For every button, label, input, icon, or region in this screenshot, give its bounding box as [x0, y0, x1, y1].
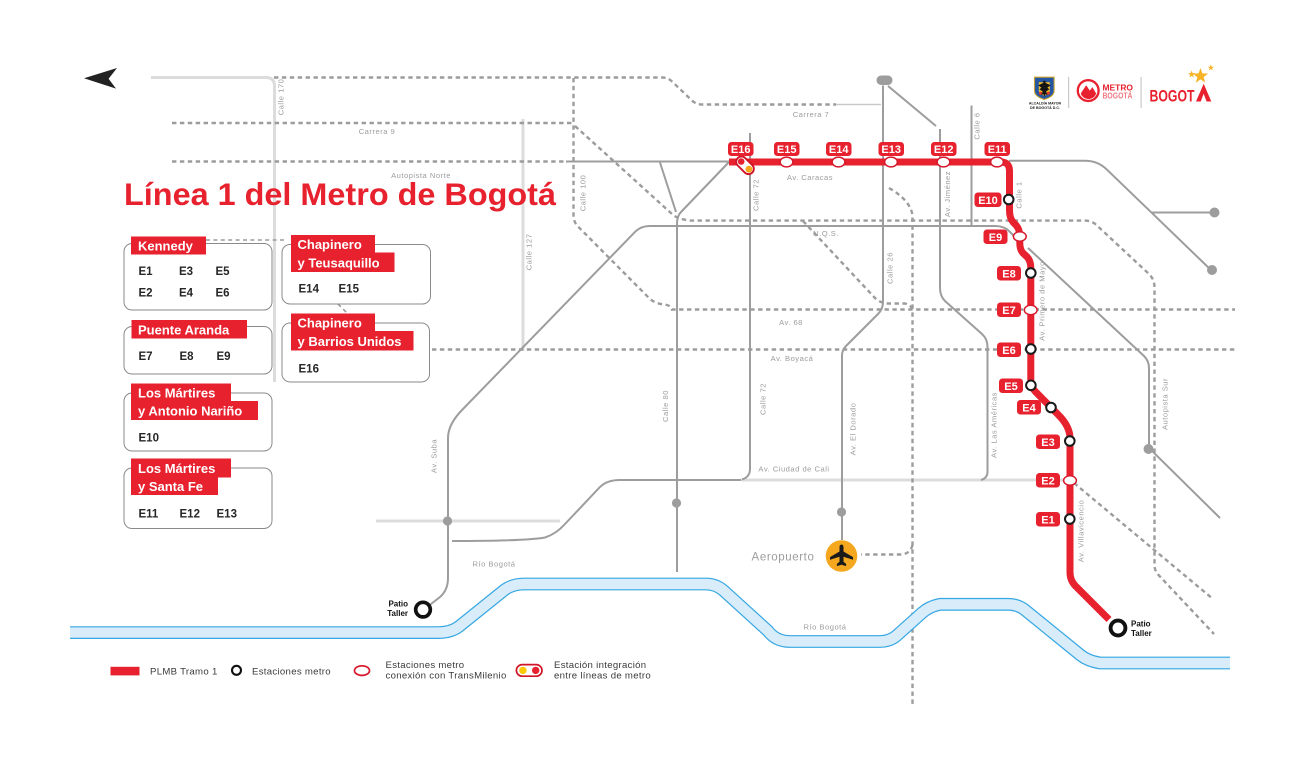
svg-text:E5: E5	[216, 266, 231, 278]
svg-text:E9: E9	[217, 351, 231, 363]
svg-text:Patio: Patio	[388, 600, 408, 609]
svg-text:Los Mártires: Los Mártires	[138, 386, 215, 401]
svg-text:Taller: Taller	[1131, 629, 1152, 638]
svg-text:E8: E8	[180, 351, 195, 363]
svg-text:E7: E7	[1002, 305, 1015, 317]
svg-text:E9: E9	[989, 232, 1002, 244]
svg-text:E3: E3	[179, 266, 193, 278]
svg-text:E13: E13	[881, 144, 901, 156]
svg-text:E2: E2	[1041, 475, 1054, 487]
svg-text:E1: E1	[1041, 514, 1054, 526]
svg-text:E8: E8	[1002, 268, 1015, 280]
svg-text:E10: E10	[139, 433, 159, 445]
svg-text:E10: E10	[978, 195, 998, 207]
svg-text:y Antonio Nariño: y Antonio Nariño	[138, 404, 242, 419]
svg-text:Puente Aranda: Puente Aranda	[138, 323, 230, 338]
svg-text:Estaciones metro: Estaciones metro	[252, 667, 331, 678]
svg-text:Estación integración: Estación integración	[554, 660, 646, 671]
svg-text:E4: E4	[179, 288, 194, 300]
svg-text:E7: E7	[139, 351, 153, 363]
svg-text:y Santa Fe: y Santa Fe	[138, 479, 203, 494]
svg-text:y Barrios Unidos: y Barrios Unidos	[298, 334, 402, 349]
svg-text:Carrera 9: Carrera 9	[359, 127, 396, 136]
svg-text:Río Bogotá: Río Bogotá	[804, 623, 847, 632]
svg-text:conexión con TransMilenio: conexión con TransMilenio	[386, 671, 507, 682]
svg-text:ALCALDÍA MAYOR: ALCALDÍA MAYOR	[1029, 101, 1062, 106]
svg-text:Carrera 7: Carrera 7	[793, 110, 830, 119]
svg-text:E14: E14	[299, 284, 320, 296]
svg-text:E14: E14	[829, 144, 849, 156]
svg-text:Calle 80: Calle 80	[661, 390, 670, 422]
svg-text:BOGOTÁ: BOGOTÁ	[1103, 89, 1133, 100]
svg-text:E12: E12	[934, 144, 954, 156]
svg-text:Av. Primero de Mayo: Av. Primero de Mayo	[1038, 261, 1047, 341]
svg-text:E2: E2	[139, 288, 153, 300]
svg-text:E11: E11	[139, 509, 159, 521]
svg-text:Línea 1 del Metro de Bogotá: Línea 1 del Metro de Bogotá	[124, 176, 556, 212]
svg-text:E15: E15	[339, 284, 360, 296]
svg-text:Calle 72: Calle 72	[752, 179, 761, 211]
svg-text:Aeropuerto: Aeropuerto	[752, 552, 815, 564]
svg-text:PLMB Tramo 1: PLMB Tramo 1	[150, 667, 218, 678]
svg-text:E4: E4	[1022, 402, 1036, 414]
svg-text:entre líneas de metro: entre líneas de metro	[554, 671, 651, 682]
svg-text:Río Bogotá: Río Bogotá	[473, 560, 516, 569]
svg-text:Av. Las Américas: Av. Las Américas	[990, 392, 999, 458]
svg-text:E15: E15	[777, 144, 797, 156]
svg-text:Av. Villavicencio: Av. Villavicencio	[1077, 500, 1086, 563]
svg-text:Patio: Patio	[1131, 620, 1151, 629]
svg-text:Taller: Taller	[387, 609, 408, 618]
svg-text:Chapinero: Chapinero	[298, 237, 362, 252]
svg-text:Av. El Dorado: Av. El Dorado	[849, 403, 858, 456]
svg-text:E11: E11	[988, 144, 1007, 156]
svg-text:Av. Caracas: Av. Caracas	[787, 173, 833, 182]
svg-text:Av. Suba: Av. Suba	[430, 439, 439, 473]
svg-text:E3: E3	[1041, 437, 1054, 449]
svg-text:Kennedy: Kennedy	[138, 239, 194, 254]
svg-text:BOGOT: BOGOT	[1150, 87, 1195, 106]
svg-text:Calle 6: Calle 6	[973, 112, 982, 139]
svg-text:Av. Boyacá: Av. Boyacá	[771, 354, 814, 363]
svg-text:Av. Ciudad de Cali: Av. Ciudad de Cali	[758, 465, 829, 474]
svg-text:E16: E16	[299, 364, 319, 376]
svg-text:Av. Jiménez: Av. Jiménez	[943, 171, 952, 217]
svg-text:Autopista Sur: Autopista Sur	[1161, 378, 1170, 430]
svg-text:E6: E6	[1002, 345, 1015, 357]
svg-text:Calle 170: Calle 170	[277, 79, 286, 116]
svg-text:Chapinero: Chapinero	[298, 316, 362, 331]
svg-text:Calle 26: Calle 26	[886, 252, 895, 284]
svg-text:Calle 100: Calle 100	[579, 175, 588, 212]
svg-text:E6: E6	[216, 288, 230, 300]
svg-text:E16: E16	[731, 144, 751, 156]
svg-text:E12: E12	[180, 509, 200, 521]
svg-text:N.Q.S.: N.Q.S.	[813, 229, 839, 238]
svg-text:Calle 72: Calle 72	[759, 383, 768, 415]
svg-text:Calle 1: Calle 1	[1015, 181, 1024, 208]
svg-text:y Teusaquillo: y Teusaquillo	[298, 256, 380, 271]
svg-text:Calle 127: Calle 127	[525, 234, 534, 271]
svg-text:Av. 68: Av. 68	[779, 318, 803, 327]
svg-text:DE BOGOTÁ D.C.: DE BOGOTÁ D.C.	[1030, 105, 1060, 110]
svg-text:Estaciones metro: Estaciones metro	[386, 660, 465, 671]
svg-text:Los Mártires: Los Mártires	[138, 461, 215, 476]
svg-text:E1: E1	[139, 266, 154, 278]
svg-text:E5: E5	[1004, 381, 1017, 393]
svg-text:E13: E13	[217, 509, 237, 521]
